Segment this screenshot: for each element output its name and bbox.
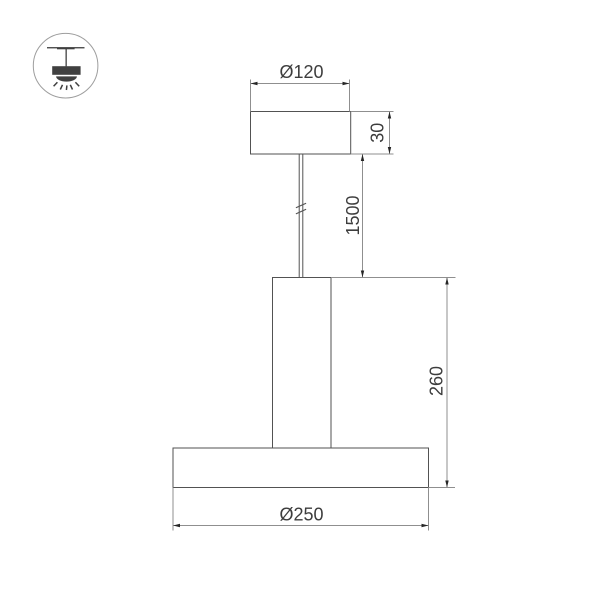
svg-text:260: 260 [427, 366, 447, 396]
svg-text:1500: 1500 [343, 195, 363, 235]
svg-text:Ø120: Ø120 [279, 62, 323, 82]
svg-text:30: 30 [368, 123, 388, 143]
svg-text:Ø250: Ø250 [279, 505, 323, 525]
